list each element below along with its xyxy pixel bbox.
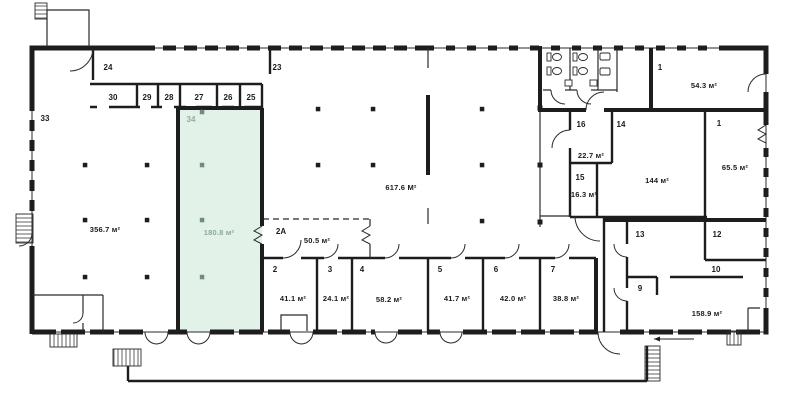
room-15-area: 16.3 м²	[571, 190, 597, 199]
wc-fixtures	[547, 53, 610, 86]
toilet-icon	[547, 53, 562, 61]
toilet-icon	[573, 53, 588, 61]
room-14-label: 14	[617, 120, 626, 129]
room-24-label: 24	[104, 63, 113, 72]
room-34-label: 34	[187, 115, 196, 124]
stairs	[16, 3, 741, 381]
room-16-label: 16	[577, 120, 586, 129]
stair-bottom-right	[727, 331, 741, 345]
columns	[83, 106, 543, 280]
highlighted-room-34[interactable]	[178, 108, 262, 332]
room-5-area: 41.7 м²	[444, 294, 470, 303]
room-34-area: 180.8 м²	[204, 228, 235, 237]
room-15-label: 15	[576, 173, 585, 182]
floor-plan: 33 24 23 30 29 28 27 26 25 34 180.8 м² 3…	[0, 0, 800, 418]
room-26-label: 26	[224, 93, 233, 102]
urinal-icon	[590, 80, 597, 86]
room-3-area: 24.1 м²	[323, 294, 349, 303]
room-2-area: 41.1 м²	[280, 294, 306, 303]
room-1-right-label: 1	[717, 119, 722, 128]
toilet-icon	[573, 67, 588, 75]
loading-dock	[128, 337, 694, 382]
sink-icon	[600, 68, 610, 75]
room-6-area: 42.0 м²	[500, 294, 526, 303]
stair-bottom-left	[50, 334, 77, 347]
room-10-label: 10	[712, 265, 721, 274]
hall-left-area: 356.7 м²	[90, 225, 121, 234]
room-25-label: 25	[247, 93, 256, 102]
stair-left	[16, 214, 33, 243]
room-labels: 33 24 23 30 29 28 27 26 25 34 180.8 м² 3…	[41, 63, 749, 318]
sink-icon	[600, 53, 610, 60]
room-5-label: 5	[438, 265, 443, 274]
room-12-label: 12	[713, 230, 722, 239]
room-7-label: 7	[551, 265, 556, 274]
room-7-area: 38.8 м²	[553, 294, 579, 303]
toilet-icon	[547, 67, 562, 75]
room-2a-label: 2A	[276, 227, 286, 236]
room-9-label: 9	[638, 284, 643, 293]
room-4-area: 58.2 м²	[376, 295, 402, 304]
room-33-label: 33	[41, 114, 50, 123]
room-13-label: 13	[636, 230, 645, 239]
door-zigzags	[254, 125, 766, 244]
door-arcs	[19, 48, 766, 354]
hall-center-area: 617.6 М²	[385, 183, 416, 192]
floor-plan-drawing: 33 24 23 30 29 28 27 26 25 34 180.8 м² 3…	[0, 0, 800, 418]
room-16-area: 22.7 м²	[578, 151, 604, 160]
room-23-label: 23	[273, 63, 282, 72]
room-4-label: 4	[360, 265, 365, 274]
stair-top-left	[35, 3, 47, 19]
dock-stair	[113, 349, 141, 366]
room-2-label: 2	[273, 265, 278, 274]
room-1-right-area: 65.5 м²	[722, 163, 748, 172]
room-144-area: 144 м²	[645, 176, 669, 185]
urinal-icon	[565, 80, 572, 86]
room-3-label: 3	[328, 265, 333, 274]
room-29-label: 29	[143, 93, 152, 102]
interior-walls-heavy	[178, 46, 766, 332]
room-1-top-label: 1	[658, 63, 663, 72]
room-1-top-area: 54.3 м²	[691, 81, 717, 90]
room-30-label: 30	[109, 93, 118, 102]
room-6-label: 6	[494, 265, 499, 274]
room-27-label: 27	[195, 93, 204, 102]
room-2a-area: 50.5 м²	[304, 236, 330, 245]
room-28-label: 28	[165, 93, 174, 102]
room-158-area: 158.9 м²	[692, 309, 723, 318]
